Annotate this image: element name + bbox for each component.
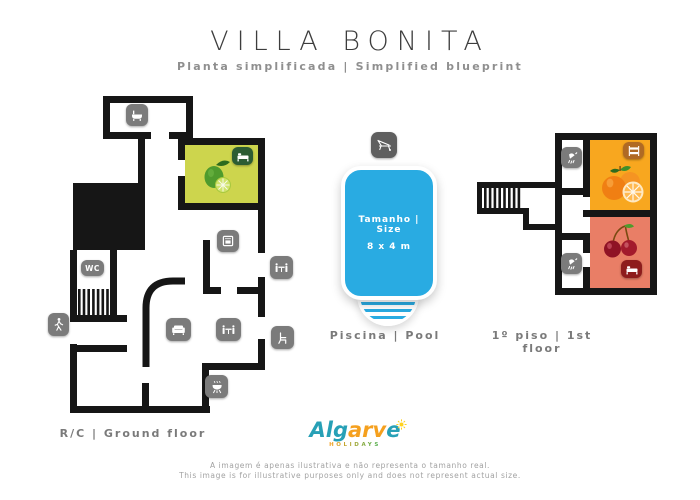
cherries-illustration <box>601 221 643 263</box>
logo-wordmark: Algarve <box>310 420 401 441</box>
ground-floor-plan <box>45 90 305 420</box>
oven-icon <box>217 230 239 252</box>
wc-icon: WC <box>81 260 104 276</box>
outdoor-chair-icon <box>271 326 294 349</box>
bathtub-icon <box>126 104 148 126</box>
walking-person-icon <box>48 313 69 336</box>
pool: Tamanho | Size 8 x 4 m <box>341 166 437 300</box>
sofa-icon <box>166 318 191 341</box>
logo-holidays-text: HOLIDAYS <box>280 442 430 448</box>
disclaimer-en: This image is for illustrative purposes … <box>0 471 700 480</box>
pool-label: Piscina | Pool <box>315 329 455 342</box>
wc-label: WC <box>85 264 100 273</box>
bunk-bed-icon <box>623 142 644 159</box>
algarve-holidays-logo: Algarve HOLIDAYS <box>280 420 430 448</box>
sun-lounger-icon <box>371 132 397 158</box>
sun-icon <box>396 413 407 434</box>
page-subtitle: Planta simplificada | Simplified bluepri… <box>0 60 700 73</box>
stairs-ground-floor <box>78 289 109 315</box>
logo-segment: arv <box>348 418 386 442</box>
first-floor-label: 1º piso | 1st floor <box>472 329 612 355</box>
pool-size-label: Tamanho | Size <box>345 215 433 235</box>
bbq-icon <box>205 375 228 398</box>
logo-segment: g <box>333 418 348 442</box>
dining-table-icon <box>216 318 241 341</box>
stairs-first-floor <box>484 188 520 208</box>
pool-size-value: 8 x 4 m <box>367 242 411 252</box>
double-bed-icon <box>621 260 642 278</box>
shower-icon <box>561 147 582 168</box>
outdoor-dining-table-icon <box>270 256 293 279</box>
bed-icon <box>232 147 253 165</box>
logo-segment: Al <box>310 418 333 442</box>
ground-floor-label: R/C | Ground floor <box>48 427 218 440</box>
disclaimer-pt: A imagem é apenas ilustrativa e não repr… <box>0 461 700 470</box>
page-title: VILLA BONITA <box>0 26 700 57</box>
lime-illustration <box>202 158 234 198</box>
shower-icon <box>561 253 582 274</box>
blueprint-page: VILLA BONITA Planta simplificada | Simpl… <box>0 0 700 500</box>
oranges-illustration <box>601 163 645 209</box>
